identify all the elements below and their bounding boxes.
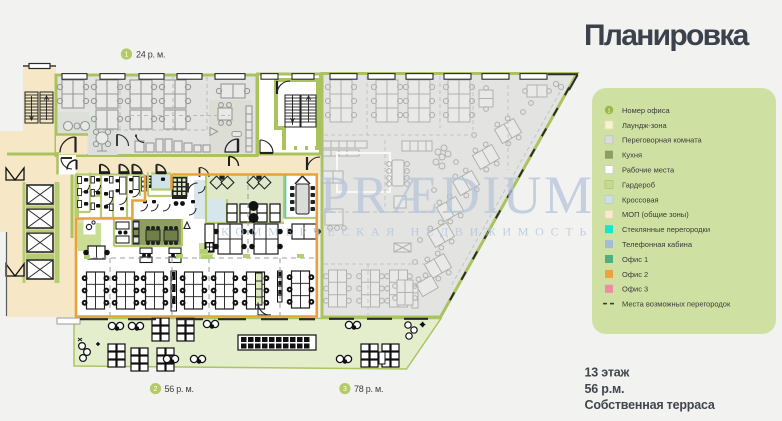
svg-text:Переговорная комната: Переговорная комната: [622, 136, 703, 145]
svg-text:Офис 2: Офис 2: [622, 270, 648, 279]
svg-text:Кроссовая: Кроссовая: [622, 195, 659, 204]
svg-text:3: 3: [343, 386, 347, 393]
svg-text:Лаундж-зона: Лаундж-зона: [622, 121, 667, 130]
svg-text:78 р. м.: 78 р. м.: [354, 384, 383, 394]
svg-text:24 р. м.: 24 р. м.: [136, 50, 165, 60]
svg-text:Места возможных перегородок: Места возможных перегородок: [622, 300, 731, 309]
svg-text:Планировка: Планировка: [584, 19, 750, 52]
svg-text:Офис 1: Офис 1: [622, 255, 648, 264]
svg-text:КОММЕРЧЕСКАЯ НЕДВИЖИМОСТЬ: КОММЕРЧЕСКАЯ НЕДВИЖИМОСТЬ: [221, 225, 593, 239]
svg-text:Собственная терраса: Собственная терраса: [585, 398, 716, 412]
svg-text:Номер офиса: Номер офиса: [622, 106, 670, 115]
svg-text:Офис 3: Офис 3: [622, 285, 648, 294]
svg-text:13 этаж: 13 этаж: [585, 366, 630, 380]
svg-text:2: 2: [154, 386, 158, 393]
svg-text:Рабочие места: Рабочие места: [622, 166, 675, 175]
svg-text:56 р.м.: 56 р.м.: [585, 382, 625, 396]
svg-text:PRÆDIUM: PRÆDIUM: [320, 165, 595, 225]
svg-text:1: 1: [125, 52, 129, 59]
svg-text:Гардероб: Гардероб: [622, 180, 655, 189]
svg-text:Телефонная кабина: Телефонная кабина: [622, 240, 693, 249]
svg-text:Стеклянные перегородки: Стеклянные перегородки: [622, 225, 710, 234]
svg-text:МОП (общие зоны): МОП (общие зоны): [622, 210, 689, 219]
svg-text:1: 1: [607, 108, 610, 114]
svg-text:Кухня: Кухня: [622, 151, 642, 160]
svg-text:56 р. м.: 56 р. м.: [165, 384, 194, 394]
